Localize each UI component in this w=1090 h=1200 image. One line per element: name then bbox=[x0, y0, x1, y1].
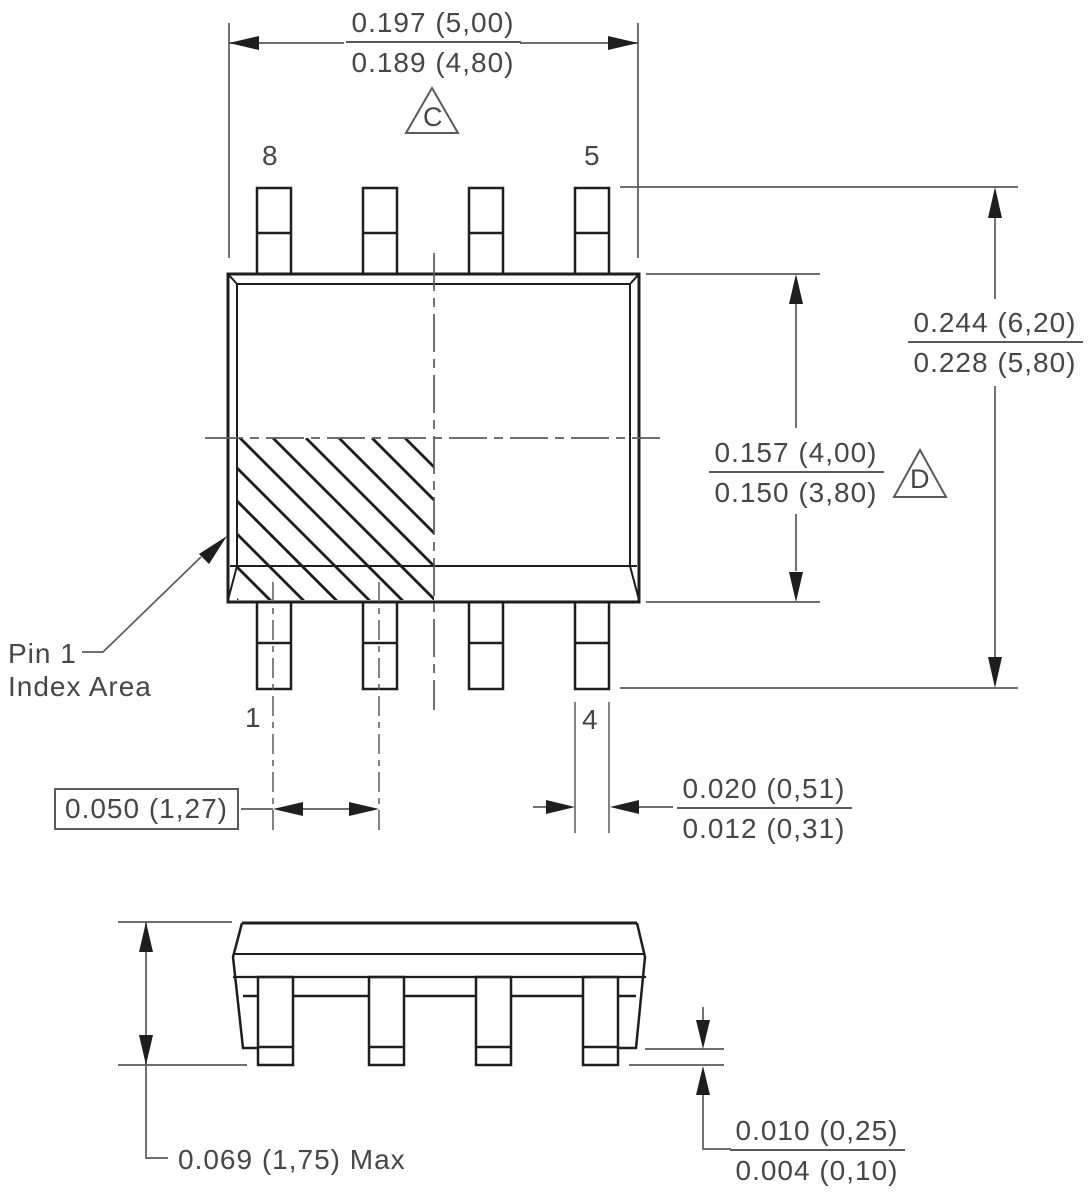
dim-pitch-lines bbox=[241, 802, 379, 816]
datum-c-label: C bbox=[423, 104, 443, 131]
dim-overall-width: 0.244 (6,20) 0.228 (5,80) bbox=[902, 306, 1088, 379]
dim-overall-width-min: 0.228 (5,80) bbox=[902, 343, 1088, 379]
package-outline-drawing: 0.197 (5,00) 0.189 (4,80) C 8 5 0.244 (6… bbox=[0, 0, 1090, 1200]
dim-standoff-lines bbox=[629, 1007, 731, 1149]
dim-height-max: 0.069 (1,75) Max bbox=[178, 1143, 406, 1176]
pin-4-label: 4 bbox=[582, 705, 598, 735]
dim-overall-width-max: 0.244 (6,20) bbox=[908, 306, 1083, 343]
dim-standoff-max: 0.010 (0,25) bbox=[730, 1114, 905, 1151]
bottom-pins bbox=[257, 602, 609, 689]
side-view bbox=[118, 922, 731, 1158]
dim-pitch-box: 0.050 (1,27) bbox=[54, 788, 239, 830]
dim-lead-width-lines bbox=[533, 702, 673, 833]
dim-height-lines bbox=[118, 922, 247, 1158]
pin-5-label: 5 bbox=[584, 141, 600, 171]
dim-body-height: 0.157 (4,00) 0.150 (3,80) bbox=[703, 436, 889, 509]
top-view bbox=[75, 23, 1018, 833]
dim-body-height-max: 0.157 (4,00) bbox=[709, 436, 884, 473]
dim-standoff-min: 0.004 (0,10) bbox=[724, 1151, 910, 1187]
dim-lead-width-max: 0.020 (0,51) bbox=[677, 772, 852, 809]
side-pins bbox=[258, 977, 618, 1065]
top-pins bbox=[257, 188, 609, 274]
pin1-note-line1: Pin 1 bbox=[8, 637, 77, 670]
dim-pitch-value: 0.050 (1,27) bbox=[65, 793, 228, 824]
dim-body-width-max: 0.197 (5,00) bbox=[346, 6, 521, 43]
pin1-note-leader bbox=[82, 536, 227, 652]
dim-lead-width: 0.020 (0,51) 0.012 (0,31) bbox=[671, 772, 857, 845]
drawing-linework bbox=[0, 0, 1090, 1200]
pin1-note-line2: Index Area bbox=[8, 670, 152, 703]
dim-lead-width-min: 0.012 (0,31) bbox=[671, 809, 857, 845]
dim-body-width-min: 0.189 (4,80) bbox=[340, 43, 526, 79]
pin-1-label: 1 bbox=[245, 703, 261, 733]
dim-standoff: 0.010 (0,25) 0.004 (0,10) bbox=[724, 1114, 910, 1187]
dim-body-height-min: 0.150 (3,80) bbox=[703, 473, 889, 509]
datum-d-label: D bbox=[910, 466, 930, 493]
pin-8-label: 8 bbox=[262, 141, 278, 171]
dim-body-width: 0.197 (5,00) 0.189 (4,80) bbox=[340, 6, 526, 79]
